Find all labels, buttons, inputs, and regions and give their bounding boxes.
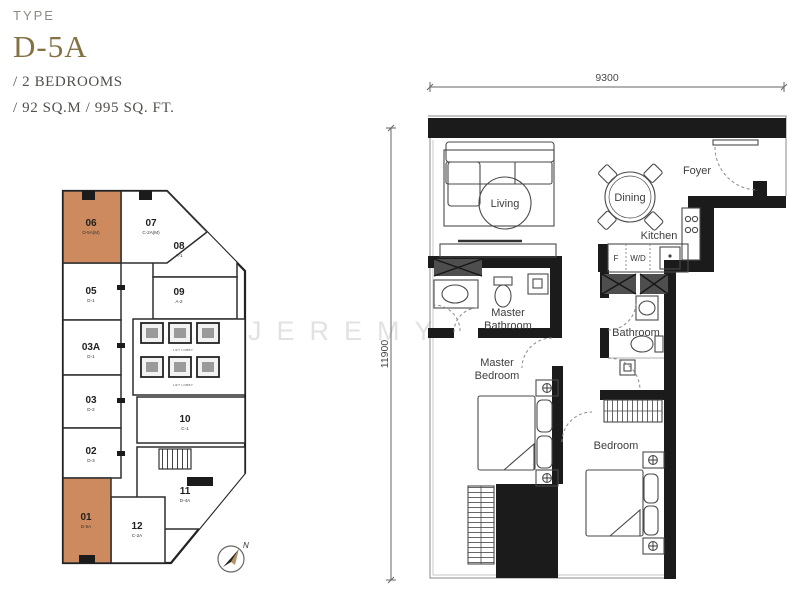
unit-08-no: 08 [173,241,185,252]
keyplan-tab-2 [139,191,152,200]
master-bedroom-door-arc [522,338,552,368]
unit-03-no: 03 [85,395,97,406]
unit-03-code: D-2 [87,407,95,412]
unit-01-code: D-5A [81,524,92,529]
key-plan: LIFT LOBBY LIFT LOBBY [55,185,290,596]
master-bathroom-label-2: Bathroom [484,320,532,332]
master-bed [478,380,558,486]
master-bathroom-label-1: Master [491,307,525,319]
unit-08-code: A-1 [175,253,183,258]
bedroom-wardrobe [604,400,662,422]
unit-07-no: 07 [145,218,157,229]
keyplan-tab-3 [79,555,95,563]
spec-bedrooms: / 2 BEDROOMS [13,74,174,91]
unit-09-no: 09 [173,287,185,298]
unit-06-no: 06 [85,218,97,229]
unit-06-code: D-5A(M) [82,230,100,235]
unit-05-no: 05 [85,286,97,297]
unit-10-no: 10 [179,414,191,425]
unit-02-no: 02 [85,446,97,457]
unit-11-code: D-4A [180,498,191,503]
foyer-label: Foyer [683,165,711,177]
unit-01-no: 01 [80,512,92,523]
keyplan-lift-bank-lower [141,357,219,377]
compass-north-label: N [243,541,249,550]
dining-label: Dining [614,192,645,204]
bedroom-door-arc [562,412,592,442]
keyplan-unit-09 [153,277,237,319]
unit-07-code: C-2A(M) [142,230,160,235]
unit-12-no: 12 [131,521,143,532]
bedroom-label: Bedroom [594,440,639,452]
unit-11-no: 11 [180,486,191,497]
lift-lobby-label-2: LIFT LOBBY [173,383,193,387]
keyplan-lift-bank-upper [141,323,219,343]
unit-03A-no: 03A [82,342,100,353]
bedroom-bed [586,452,664,554]
keyplan-wall-mark [187,477,213,486]
dim-height-label: 11900 [379,340,391,369]
kitchen-label: Kitchen [641,230,678,242]
type-label: TYPE [13,8,174,23]
unit-12-code: C-2A [132,533,143,538]
unit-09-code: A-2 [175,299,183,304]
main-floor-plan: 9300 11900 [375,65,800,596]
bathroom-fixtures [608,296,664,390]
washer-dryer-label: W/D [630,254,646,263]
floorplan-sheet: JEREMY TYPE D-5A / 2 BEDROOMS / 92 SQ.M … [0,0,800,596]
dim-width-label: 9300 [595,72,619,84]
unit-type-title: D-5A [13,29,174,65]
master-wardrobe [468,486,494,564]
keyplan-unit-10 [137,397,245,443]
keyplan-stairs [159,449,191,469]
master-bedroom-label-2: Bedroom [475,370,520,382]
title-block: TYPE D-5A / 2 BEDROOMS / 92 SQ.M / 995 S… [13,8,174,117]
entry-door [713,140,758,190]
unit-03A-code: D-1 [87,354,95,359]
unit-02-code: D-3 [87,458,95,463]
master-bedroom-label-1: Master [480,357,514,369]
unit-10-code: C-1 [181,426,189,431]
keyplan-tab-1 [82,191,95,200]
fridge-label: F [614,254,619,263]
living-label: Living [491,198,520,210]
lift-lobby-label-1: LIFT LOBBY [173,348,193,352]
bathroom-label: Bathroom [612,327,660,339]
compass-icon: N [218,541,249,572]
kitchen-counter [682,208,700,260]
spec-area: / 92 SQ.M / 995 SQ. FT. [13,100,174,117]
unit-05-code: D-1 [87,298,95,303]
